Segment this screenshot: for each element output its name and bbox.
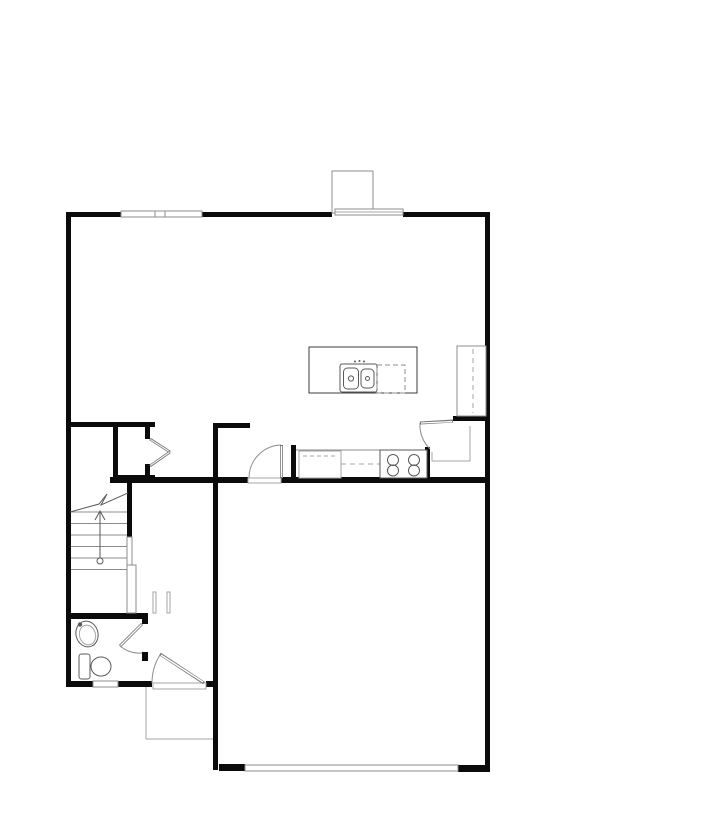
garage-door: [245, 765, 458, 771]
wall-right: [485, 212, 490, 772]
stair-arrow-start: [97, 558, 103, 564]
garage-entry-door-arc: [249, 445, 281, 478]
wall-closet-west: [113, 427, 118, 480]
wall-bath-north: [66, 613, 147, 619]
wall-south-a: [66, 681, 93, 687]
sink-base-cabinet: [299, 451, 341, 478]
toilet-tank: [79, 654, 90, 679]
toilet-bowl: [91, 657, 111, 676]
pantry-shelves: [432, 426, 470, 461]
pantry-door-arc: [420, 423, 430, 449]
faucet-dot-2: [359, 360, 361, 362]
wall-stair-east: [127, 483, 132, 537]
hall-nook-wall-east: [167, 592, 170, 613]
wall-south-b: [118, 681, 152, 687]
floor-plan-document: [0, 0, 720, 831]
sink-faucet: [78, 622, 82, 626]
window-bath: [93, 681, 118, 687]
window-great-room-mullion: [155, 211, 165, 217]
range: [380, 450, 427, 478]
bathroom-door-leaf-core: [121, 625, 142, 646]
fireplace: [332, 171, 373, 213]
wall-top-left: [66, 212, 121, 217]
wall-garage-west: [213, 423, 218, 770]
wall-closet-east-lower: [145, 464, 150, 480]
wall-dining-stub: [213, 423, 250, 428]
bathroom-door-arc: [120, 646, 142, 653]
wall-garage-south-east: [458, 765, 490, 772]
wall-counter-end: [291, 445, 296, 482]
closet-door-upper-core: [151, 440, 170, 452]
front-door-arc: [152, 655, 160, 683]
front-door-sill: [153, 683, 206, 689]
wall-top-mid: [202, 212, 332, 217]
front-door-leaf-core: [161, 655, 203, 682]
wall-closet-east-upper: [145, 427, 150, 439]
wall-pantry-north: [453, 416, 490, 421]
wall-top-right: [403, 212, 490, 217]
garage-entry-sill: [248, 478, 281, 483]
wall-garage-south-west: [219, 764, 245, 771]
faucet-dot-3: [363, 361, 365, 363]
wall-bath-east-upper: [142, 613, 148, 624]
wall-bath-east-lower: [142, 652, 148, 661]
refrigerator: [457, 346, 486, 416]
stair-break-line: [70, 493, 128, 512]
wall-south-c: [206, 681, 218, 687]
faucet-dot-1: [354, 361, 356, 363]
closet-door-lower-core: [151, 452, 170, 465]
wall-hall-north: [66, 422, 155, 427]
floor-plan-canvas: [0, 0, 720, 831]
hall-nook-wall-west: [153, 592, 156, 613]
stair-base-wall: [127, 565, 136, 613]
stair-half-wall: [127, 537, 132, 565]
